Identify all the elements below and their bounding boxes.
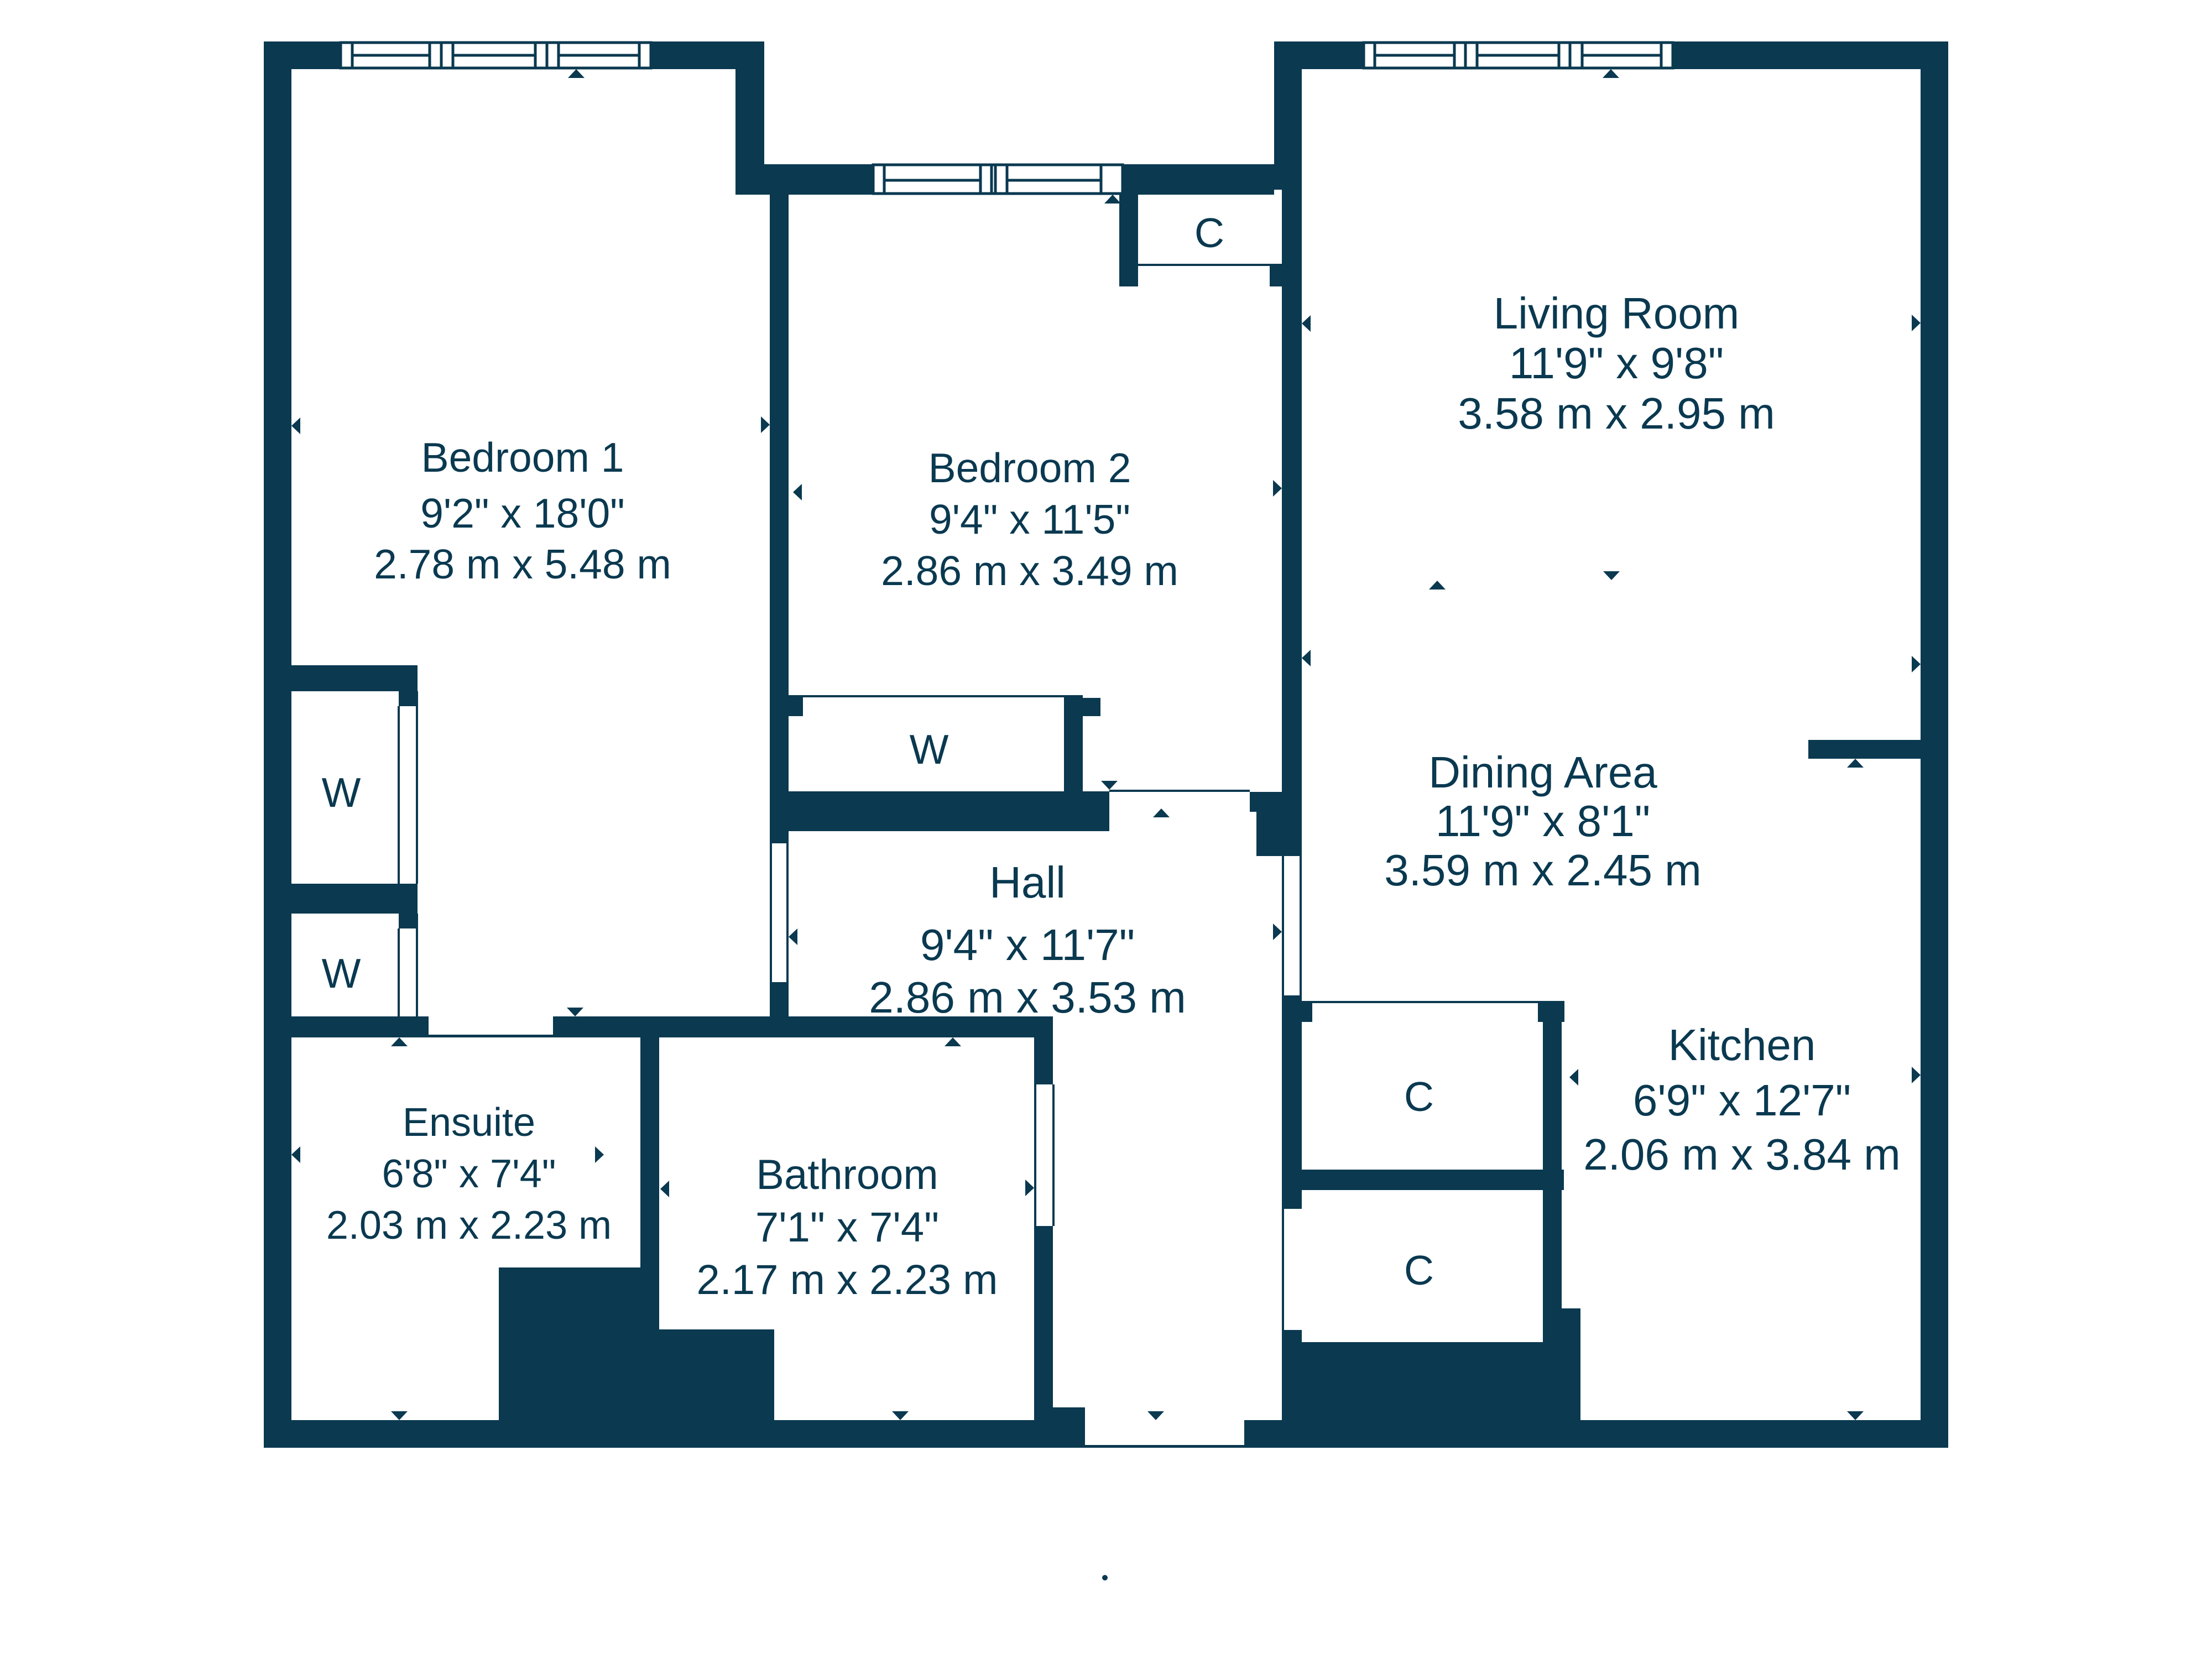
svg-text:11'9" x 8'1": 11'9" x 8'1": [1436, 796, 1650, 846]
svg-text:6'9" x 12'7": 6'9" x 12'7": [1633, 1076, 1851, 1125]
svg-text:2.78 m x 5.48 m: 2.78 m x 5.48 m: [374, 541, 671, 587]
svg-text:W: W: [322, 950, 361, 997]
svg-text:C: C: [1194, 210, 1224, 256]
svg-text:2.06 m x 3.84 m: 2.06 m x 3.84 m: [1583, 1130, 1901, 1179]
svg-text:Ensuite: Ensuite: [403, 1100, 535, 1145]
svg-text:C: C: [1404, 1073, 1434, 1120]
svg-text:Hall: Hall: [989, 858, 1066, 907]
svg-text:3.58 m x 2.95 m: 3.58 m x 2.95 m: [1458, 389, 1775, 438]
svg-text:2.86 m x 3.53 m: 2.86 m x 3.53 m: [869, 973, 1186, 1022]
svg-text:2.03 m x 2.23 m: 2.03 m x 2.23 m: [326, 1203, 612, 1248]
svg-text:Living Room: Living Room: [1494, 289, 1740, 338]
svg-text:6'8" x 7'4": 6'8" x 7'4": [382, 1152, 556, 1196]
svg-text:2.86 m x 3.49 m: 2.86 m x 3.49 m: [881, 547, 1178, 594]
svg-text:9'4" x 11'5": 9'4" x 11'5": [929, 496, 1130, 542]
svg-text:W: W: [322, 769, 361, 816]
svg-text:Dining Area: Dining Area: [1428, 748, 1657, 797]
svg-text:3.59 m x 2.45 m: 3.59 m x 2.45 m: [1384, 846, 1702, 895]
svg-text:9'2" x 18'0": 9'2" x 18'0": [420, 490, 625, 536]
svg-text:9'4" x 11'7": 9'4" x 11'7": [920, 920, 1135, 969]
svg-text:11'9" x 9'8": 11'9" x 9'8": [1509, 338, 1724, 388]
svg-text:Bathroom: Bathroom: [756, 1151, 938, 1198]
svg-text:Bedroom 2: Bedroom 2: [928, 445, 1131, 491]
svg-text:7'1" x 7'4": 7'1" x 7'4": [755, 1204, 939, 1251]
svg-text:2.17 m x 2.23 m: 2.17 m x 2.23 m: [697, 1256, 998, 1303]
svg-text:Kitchen: Kitchen: [1668, 1020, 1816, 1070]
svg-text:W: W: [910, 726, 949, 773]
svg-text:C: C: [1404, 1247, 1434, 1293]
svg-text:Bedroom 1: Bedroom 1: [421, 434, 624, 481]
